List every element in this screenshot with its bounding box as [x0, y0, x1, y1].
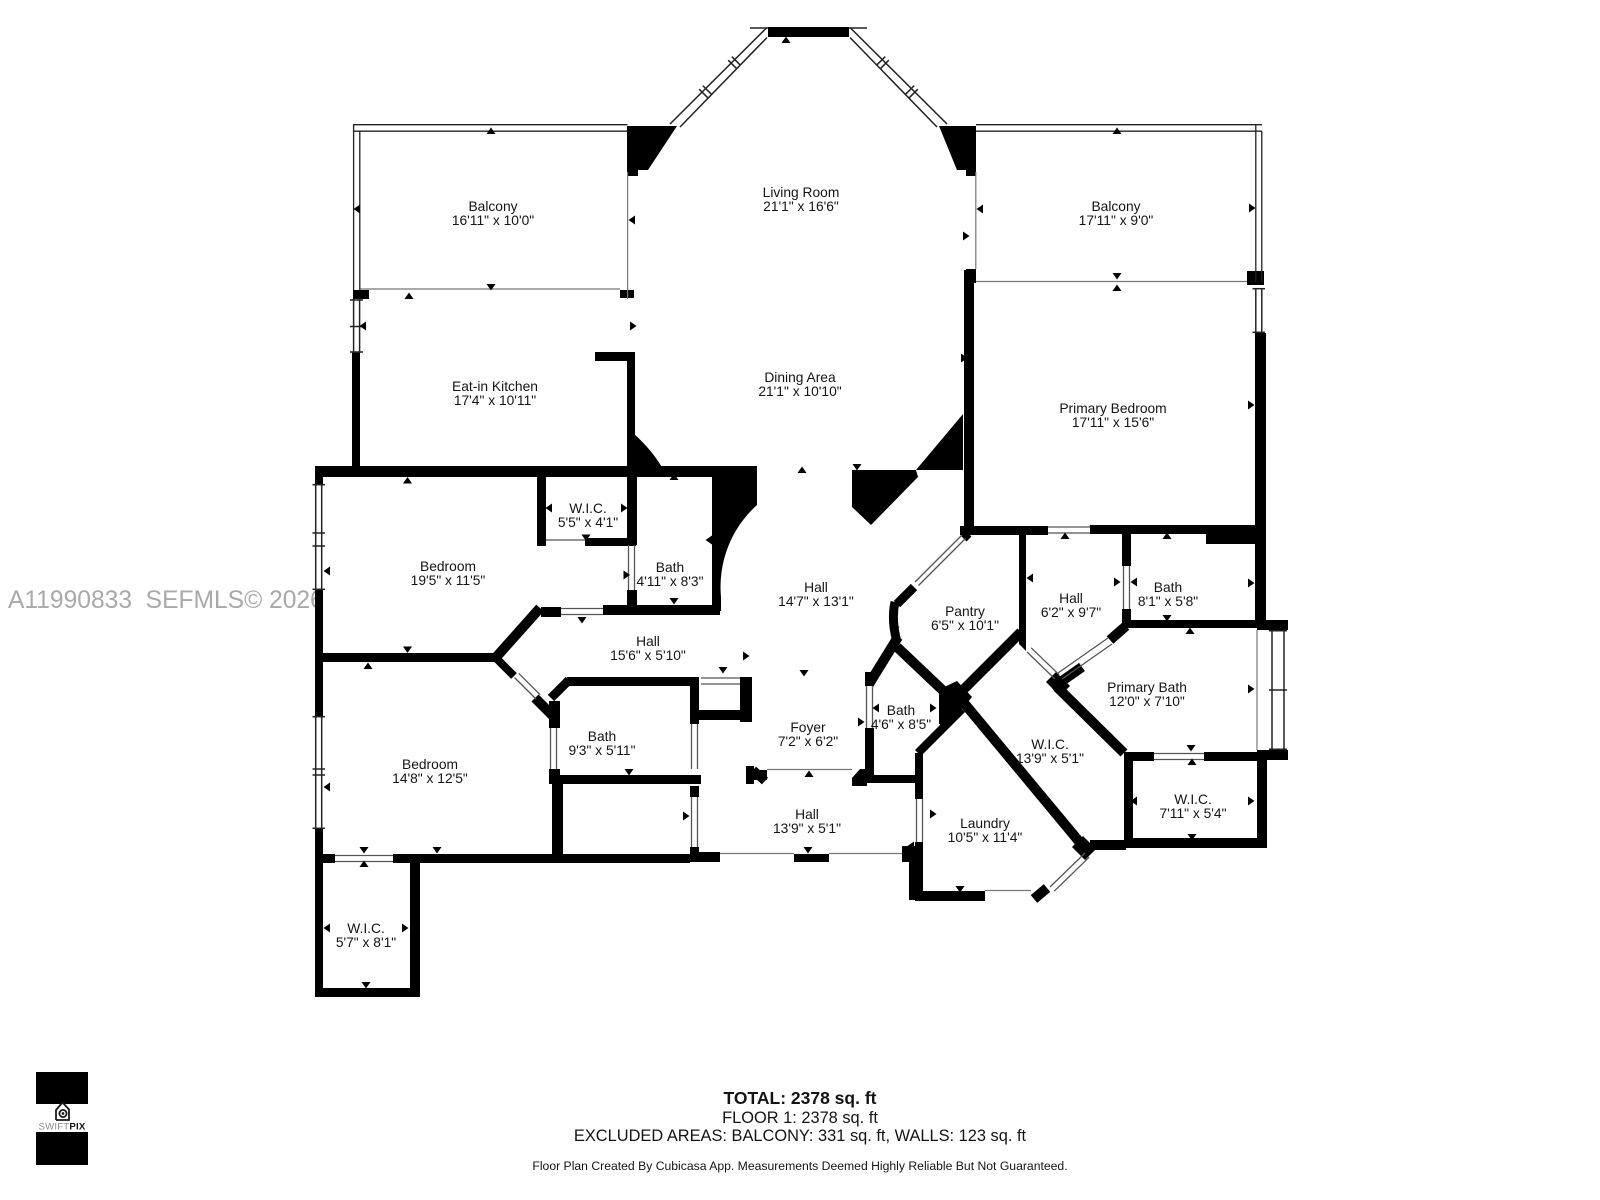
svg-text:17'11" x 15'6": 17'11" x 15'6"	[1072, 415, 1154, 430]
svg-text:17'11" x 9'0": 17'11" x 9'0"	[1079, 213, 1154, 228]
svg-text:5'7" x 8'1": 5'7" x 8'1"	[336, 935, 396, 950]
svg-text:13'9" x 5'1": 13'9" x 5'1"	[1016, 751, 1084, 766]
svg-text:Foyer: Foyer	[790, 720, 826, 735]
svg-text:9'3" x 5'11": 9'3" x 5'11"	[569, 743, 636, 758]
svg-text:Laundry: Laundry	[960, 816, 1010, 831]
svg-text:W.I.C.: W.I.C.	[1031, 737, 1069, 752]
svg-text:W.I.C.: W.I.C.	[569, 501, 607, 516]
svg-text:Hall: Hall	[1059, 591, 1083, 606]
svg-text:17'4" x 10'11": 17'4" x 10'11"	[454, 393, 536, 408]
svg-text:Bath: Bath	[1154, 580, 1182, 595]
svg-text:21'1" x 10'10": 21'1" x 10'10"	[758, 384, 841, 399]
svg-text:TOTAL: 2378 sq. ft: TOTAL: 2378 sq. ft	[724, 1088, 877, 1108]
svg-text:15'6" x 5'10": 15'6" x 5'10"	[610, 648, 686, 663]
svg-text:Primary Bedroom: Primary Bedroom	[1059, 401, 1166, 416]
svg-text:8'1" x 5'8": 8'1" x 5'8"	[1138, 594, 1198, 609]
svg-text:Hall: Hall	[804, 580, 828, 595]
svg-text:13'9" x 5'1": 13'9" x 5'1"	[773, 821, 841, 836]
svg-text:Balcony: Balcony	[468, 199, 517, 214]
svg-text:Dining Area: Dining Area	[764, 370, 836, 385]
svg-text:19'5" x 11'5": 19'5" x 11'5"	[411, 573, 486, 588]
svg-text:6'5" x 10'1": 6'5" x 10'1"	[931, 618, 999, 633]
svg-text:10'5" x 11'4": 10'5" x 11'4"	[948, 830, 1023, 845]
svg-text:12'0" x 7'10": 12'0" x 7'10"	[1109, 694, 1185, 709]
svg-text:Hall: Hall	[795, 807, 819, 822]
svg-text:4'6" x 8'5": 4'6" x 8'5"	[871, 717, 931, 732]
svg-text:Bedroom: Bedroom	[420, 559, 476, 574]
svg-text:14'7" x 13'1": 14'7" x 13'1"	[778, 594, 854, 609]
svg-text:W.I.C.: W.I.C.	[347, 921, 385, 936]
svg-text:A11990833 SEFMLS© 2026: A11990833 SEFMLS© 2026	[8, 587, 324, 614]
svg-text:7'11" x 5'4": 7'11" x 5'4"	[1160, 806, 1227, 821]
svg-text:21'1" x 16'6": 21'1" x 16'6"	[763, 199, 839, 214]
svg-text:W.I.C.: W.I.C.	[1174, 792, 1212, 807]
svg-text:14'8" x 12'5": 14'8" x 12'5"	[392, 771, 468, 786]
svg-text:SWIFTPIX: SWIFTPIX	[39, 1122, 86, 1133]
svg-text:7'2" x 6'2": 7'2" x 6'2"	[778, 734, 838, 749]
svg-text:Balcony: Balcony	[1091, 199, 1140, 214]
svg-text:Living Room: Living Room	[763, 185, 840, 200]
svg-text:4'11" x 8'3": 4'11" x 8'3"	[637, 574, 704, 589]
svg-text:Hall: Hall	[636, 634, 660, 649]
svg-text:Pantry: Pantry	[945, 604, 985, 619]
svg-text:EXCLUDED AREAS: BALCONY: 331 s: EXCLUDED AREAS: BALCONY: 331 sq. ft, WAL…	[574, 1127, 1027, 1145]
svg-text:5'5" x 4'1": 5'5" x 4'1"	[558, 515, 618, 530]
svg-text:Bedroom: Bedroom	[402, 757, 458, 772]
svg-text:Bath: Bath	[887, 703, 915, 718]
svg-text:FLOOR 1: 2378 sq. ft: FLOOR 1: 2378 sq. ft	[722, 1109, 878, 1127]
svg-text:6'2" x 9'7": 6'2" x 9'7"	[1041, 605, 1101, 620]
svg-text:Floor Plan Created By Cubicasa: Floor Plan Created By Cubicasa App. Meas…	[532, 1159, 1067, 1173]
svg-text:Primary Bath: Primary Bath	[1107, 680, 1187, 695]
svg-text:Bath: Bath	[588, 729, 616, 744]
svg-text:16'11" x 10'0": 16'11" x 10'0"	[452, 213, 534, 228]
svg-text:Bath: Bath	[656, 560, 684, 575]
svg-text:Eat-in Kitchen: Eat-in Kitchen	[452, 379, 538, 394]
